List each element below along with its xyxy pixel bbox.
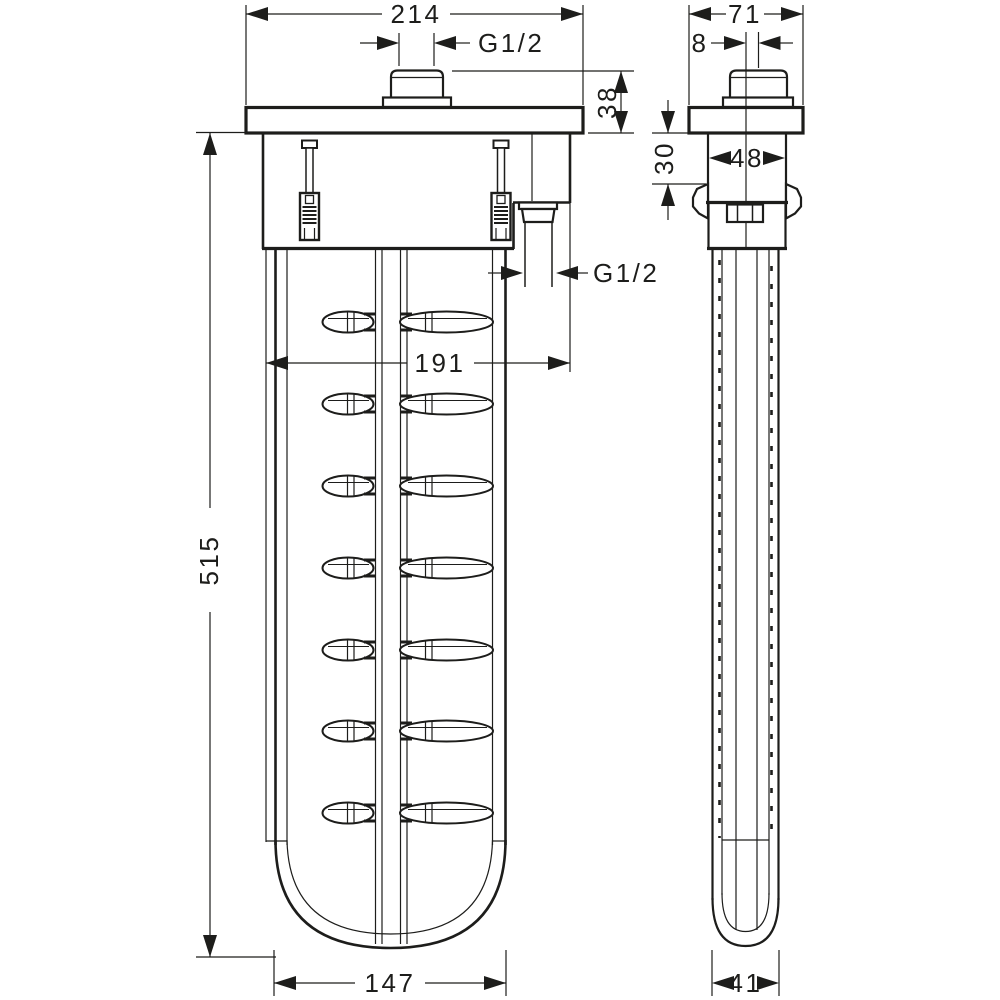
dim-top-thread: G1/2 — [360, 28, 544, 66]
dim-191-label: 191 — [415, 348, 466, 378]
capsule-fin-row — [323, 640, 494, 661]
dim-upper-body-depth: 48 — [709, 143, 785, 173]
dim-147-label: 147 — [365, 968, 416, 998]
side-clip-wing-right — [786, 184, 801, 219]
side-clip-wing-left — [693, 184, 708, 219]
capsule-fin-row — [323, 803, 494, 824]
dim-48-label: 48 — [730, 143, 764, 173]
dim-g12-outlet-label: G1/2 — [593, 258, 659, 288]
capsule-fin-row — [323, 394, 494, 415]
dim-214-label: 214 — [391, 0, 442, 29]
technical-drawing-canvas: 214 G1/2 38 G1/2 — [0, 0, 1000, 1000]
dim-41-label: 41 — [729, 968, 763, 998]
dim-8-label: 8 — [692, 28, 709, 58]
dim-overall-height: 515 — [194, 133, 276, 958]
front-capsule-fins — [323, 312, 494, 824]
front-outlet-pipe — [519, 203, 557, 288]
front-flange — [246, 108, 583, 134]
capsule-fin-row — [323, 312, 494, 333]
dim-38-label: 38 — [592, 85, 622, 119]
fixing-screw — [492, 141, 511, 241]
dim-30-label: 30 — [649, 141, 679, 175]
front-top-connector — [383, 71, 451, 108]
dim-body-width: 147 — [274, 950, 506, 998]
front-view — [246, 71, 583, 949]
technical-drawing-page: 214 G1/2 38 G1/2 — [0, 0, 1000, 1000]
dim-71-label: 71 — [728, 0, 762, 29]
dim-outlet-offset: 191 — [266, 348, 570, 378]
side-lower-column — [713, 250, 779, 946]
dim-column-depth: 41 — [712, 950, 779, 998]
side-top-connector — [723, 71, 793, 108]
side-clip-nut — [727, 205, 763, 223]
capsule-fin-row — [323, 476, 494, 497]
dim-outlet-thread: G1/2 — [488, 258, 659, 288]
dim-flange-height: 38 — [452, 71, 634, 133]
capsule-fin-row — [323, 558, 494, 579]
front-fixing-screws — [300, 141, 511, 241]
dim-515-label: 515 — [194, 535, 224, 586]
fixing-screw — [300, 141, 319, 241]
capsule-fin-row — [323, 721, 494, 742]
dim-connector-offset: 8 — [692, 28, 793, 133]
side-view — [689, 71, 803, 947]
dim-g12-top-label: G1/2 — [478, 28, 544, 58]
front-capsule-body — [266, 250, 506, 948]
